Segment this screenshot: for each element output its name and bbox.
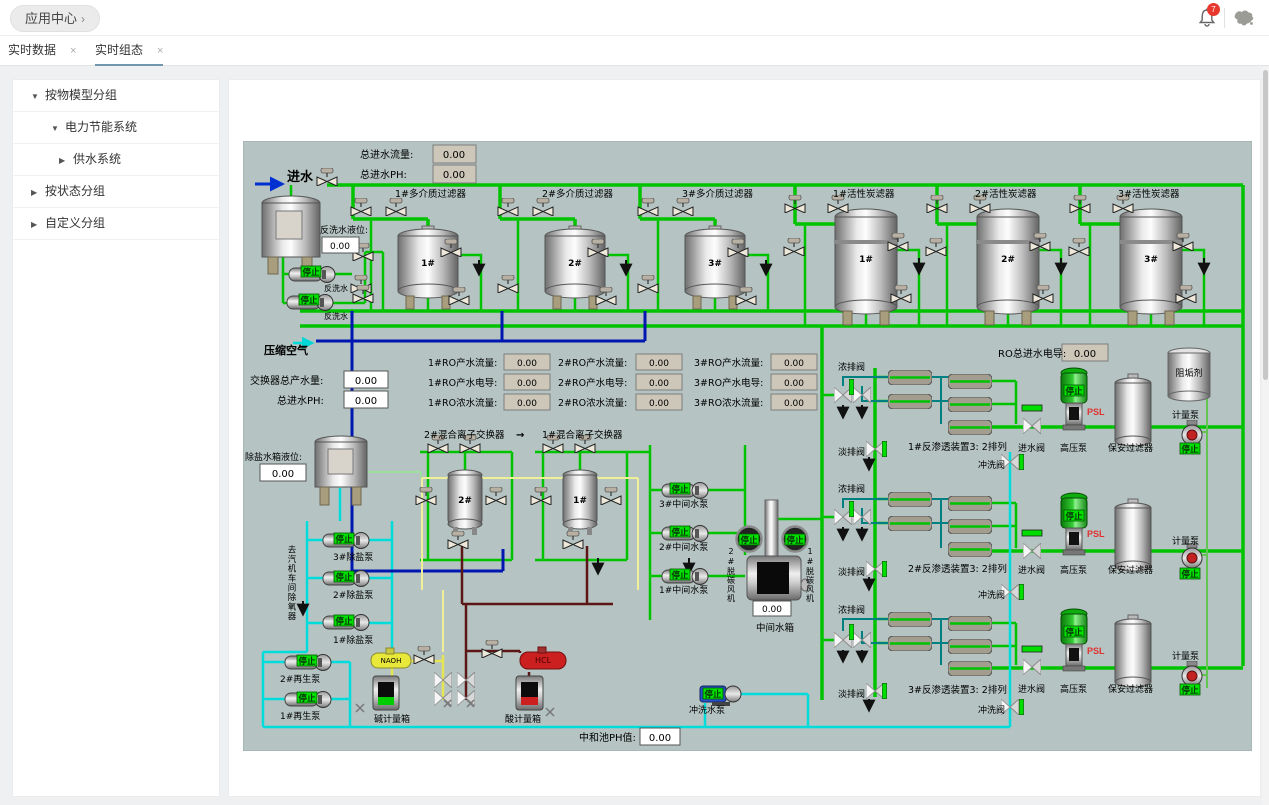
- stop-button: 停止: [299, 294, 319, 306]
- svg-text:停止: 停止: [1065, 386, 1083, 397]
- sidebar-item-label: 按物模型分组: [45, 88, 117, 102]
- stop-button: 停止: [670, 526, 690, 538]
- chevron-down-icon: ▼: [51, 113, 65, 144]
- svg-text:3#RO产水流量:: 3#RO产水流量:: [694, 357, 763, 369]
- svg-text:停止: 停止: [1065, 627, 1083, 638]
- svg-text:停止: 停止: [1181, 685, 1199, 696]
- svg-text:3#中间水泵: 3#中间水泵: [659, 498, 708, 510]
- svg-text:停止: 停止: [335, 572, 353, 583]
- main-panel: 1# 2# 3#: [228, 79, 1261, 797]
- svg-text:冲洗水泵: 冲洗水泵: [689, 704, 725, 716]
- scrollbar[interactable]: [1262, 67, 1269, 805]
- svg-text:停止: 停止: [786, 535, 804, 546]
- svg-text:3#RO浓水流量:: 3#RO浓水流量:: [694, 397, 763, 409]
- svg-text:PSL: PSL: [1087, 529, 1105, 539]
- carbon-filter-2: 2#: [977, 209, 1039, 325]
- stop-button: 停止: [670, 569, 690, 581]
- security-filter-2: [1115, 499, 1151, 571]
- svg-text:停止: 停止: [1065, 511, 1083, 522]
- svg-text:→: →: [516, 430, 524, 441]
- svg-text:反洗水: 反洗水: [324, 311, 348, 321]
- stop-button: 停止: [703, 688, 723, 700]
- ro3-conc-value: 0.00: [784, 399, 804, 409]
- svg-text:2#反渗透装置3: 2排列: 2#反渗透装置3: 2排列: [908, 563, 1007, 575]
- app-center-button[interactable]: 应用中心›: [10, 5, 100, 32]
- svg-text:3#: 3#: [1144, 255, 1158, 265]
- svg-text:除盐水箱液位:: 除盐水箱液位:: [245, 451, 302, 463]
- china-map-icon[interactable]: [1232, 8, 1256, 28]
- svg-text:停止: 停止: [671, 527, 689, 538]
- svg-text:计量泵: 计量泵: [1172, 409, 1199, 421]
- svg-text:2#除盐泵: 2#除盐泵: [333, 589, 373, 601]
- mid-tank-level-value: 0.00: [762, 605, 782, 615]
- svg-text:停止: 停止: [740, 535, 758, 546]
- svg-text:停止: 停止: [335, 616, 353, 627]
- exch-total-value: 0.00: [355, 376, 377, 387]
- svg-text:进水阀: 进水阀: [1018, 442, 1045, 454]
- sidebar-item-custom-group[interactable]: ▶自定义分组: [13, 208, 219, 240]
- stop-button: 停止: [1064, 510, 1084, 522]
- svg-text:RO总进水电导:: RO总进水电导:: [998, 347, 1066, 360]
- stop-button: 停止: [334, 615, 354, 627]
- ro1-flow-value: 0.00: [517, 359, 537, 369]
- svg-text:1#混合离子交换器: 1#混合离子交换器: [542, 429, 623, 441]
- backwash-level-value: 0.00: [330, 242, 350, 252]
- acid-metering-tank: [516, 676, 543, 710]
- svg-text:2#RO产水电导:: 2#RO产水电导:: [558, 377, 627, 389]
- svg-text:1#: 1#: [421, 259, 435, 269]
- svg-text:中间水箱: 中间水箱: [756, 622, 794, 634]
- svg-text:1#RO产水流量:: 1#RO产水流量:: [428, 357, 497, 369]
- scrollbar-thumb[interactable]: [1263, 70, 1268, 380]
- svg-text:1#RO产水电导:: 1#RO产水电导:: [428, 377, 497, 389]
- svg-text:1#除盐泵: 1#除盐泵: [333, 634, 373, 646]
- chevron-right-icon: ▶: [31, 177, 45, 208]
- svg-text:中和池PH值:: 中和池PH值:: [579, 731, 636, 744]
- svg-text:反洗水: 反洗水: [324, 283, 348, 293]
- tab-label: 实时数据: [8, 43, 56, 57]
- svg-text:3#反渗透装置3: 2排列: 3#反渗透装置3: 2排列: [908, 684, 1007, 696]
- svg-text:进水: 进水: [287, 169, 314, 185]
- svg-text:2#再生泵: 2#再生泵: [280, 673, 320, 685]
- svg-text:计量泵: 计量泵: [1172, 650, 1199, 662]
- svg-text:保安过滤器: 保安过滤器: [1108, 564, 1153, 576]
- sidebar-item-label: 自定义分组: [45, 216, 105, 230]
- svg-text:3#除盐泵: 3#除盐泵: [333, 551, 373, 563]
- svg-text:2#RO浓水流量:: 2#RO浓水流量:: [558, 397, 627, 409]
- svg-text:酸计量箱: 酸计量箱: [505, 713, 541, 725]
- svg-text:浓排阀: 浓排阀: [838, 483, 865, 495]
- alkali-metering-tank: [373, 676, 399, 710]
- sidebar-item-power-saving[interactable]: ▼电力节能系统: [13, 112, 219, 144]
- svg-text:淡排阀: 淡排阀: [838, 566, 865, 578]
- svg-text:2#中间水泵: 2#中间水泵: [659, 541, 708, 553]
- svg-text:停止: 停止: [1181, 444, 1199, 455]
- divider: [1224, 8, 1225, 28]
- scada-diagram: 1# 2# 3#: [243, 141, 1252, 751]
- tab-realtime-graphic[interactable]: 实时组态×: [95, 36, 163, 66]
- svg-text:3#活性炭滤器: 3#活性炭滤器: [1118, 188, 1180, 200]
- svg-text:1#再生泵: 1#再生泵: [280, 710, 320, 722]
- ro-total-cond-value: 0.00: [1074, 349, 1096, 360]
- svg-text:压缩空气: 压缩空气: [264, 343, 308, 357]
- svg-text:进水阀: 进水阀: [1018, 564, 1045, 576]
- svg-text:计量泵: 计量泵: [1172, 535, 1199, 547]
- stop-button: 停止: [297, 655, 317, 667]
- stop-button: 停止: [297, 692, 317, 704]
- svg-text:1#反渗透装置3: 2排列: 1#反渗透装置3: 2排列: [908, 441, 1007, 453]
- security-filter-1: [1115, 374, 1151, 446]
- desalt-level-value: 0.00: [272, 469, 294, 480]
- svg-text:PSL: PSL: [1087, 646, 1105, 656]
- svg-text:高压泵: 高压泵: [1060, 564, 1087, 576]
- ro3-flow-value: 0.00: [784, 359, 804, 369]
- tab-bar: 实时数据× 实时组态×: [0, 36, 1269, 66]
- stop-button: 停止: [739, 534, 759, 546]
- svg-text:淡排阀: 淡排阀: [838, 446, 865, 458]
- chevron-right-icon: ›: [81, 12, 85, 26]
- stop-button: 停止: [670, 483, 690, 495]
- svg-text:PSL: PSL: [1087, 407, 1105, 417]
- svg-text:2#RO产水流量:: 2#RO产水流量:: [558, 357, 627, 369]
- svg-text:浓排阀: 浓排阀: [838, 361, 865, 373]
- svg-text:停止: 停止: [298, 656, 316, 667]
- svg-text:停止: 停止: [671, 484, 689, 495]
- sidebar-item-water-supply[interactable]: ▶供水系统: [13, 144, 219, 176]
- svg-text:总进水流量:: 总进水流量:: [360, 148, 413, 161]
- sidebar-item-model-group[interactable]: ▼按物模型分组: [13, 80, 219, 112]
- chevron-right-icon: ▶: [59, 145, 73, 176]
- svg-text:交换器总产水量:: 交换器总产水量:: [250, 374, 323, 387]
- chevron-down-icon: ▼: [31, 81, 45, 112]
- security-filter-3: [1115, 615, 1151, 687]
- svg-text:停止: 停止: [298, 693, 316, 704]
- svg-text:淡排阀: 淡排阀: [838, 688, 865, 700]
- svg-text:2#活性炭滤器: 2#活性炭滤器: [975, 188, 1037, 200]
- svg-text:2#: 2#: [458, 496, 472, 506]
- top-bar: 应用中心› 7: [0, 0, 1269, 36]
- ro2-cond-value: 0.00: [649, 379, 669, 389]
- svg-text:停止: 停止: [704, 689, 722, 700]
- svg-text:3#多介质过滤器: 3#多介质过滤器: [682, 188, 754, 200]
- ro1-cond-value: 0.00: [517, 379, 537, 389]
- svg-text:1#中间水泵: 1#中间水泵: [659, 584, 708, 596]
- ro2-flow-value: 0.00: [649, 359, 669, 369]
- svg-text:停止: 停止: [671, 570, 689, 581]
- svg-text:冲洗阀: 冲洗阀: [978, 704, 1005, 716]
- stop-button: 停止: [334, 533, 354, 545]
- svg-text:2#混合离子交换器: 2#混合离子交换器: [424, 429, 505, 441]
- ion-exchanger-1: 1#: [563, 470, 597, 535]
- svg-text:阻垢剂: 阻垢剂: [1175, 367, 1202, 379]
- svg-text:总进水PH:: 总进水PH:: [277, 394, 324, 407]
- ion-exchanger-2: 2#: [448, 470, 482, 535]
- svg-text:1#脱碳风机: 1#脱碳风机: [806, 547, 815, 603]
- app-window: 应用中心› 7 实时数据× 实时组态× ▼按物模型分组 ▼电力节能系统 ▶供水系…: [0, 0, 1269, 805]
- svg-text:碱计量箱: 碱计量箱: [374, 713, 410, 725]
- neutral-ph-value: 0.00: [649, 733, 671, 744]
- svg-text:1#: 1#: [859, 255, 873, 265]
- close-icon[interactable]: ×: [157, 45, 163, 57]
- svg-text:保安过滤器: 保安过滤器: [1108, 683, 1153, 695]
- stop-button: 停止: [1064, 385, 1084, 397]
- total-flow-value: 0.00: [443, 150, 465, 161]
- svg-text:2#: 2#: [568, 259, 582, 269]
- inlet-ph-value: 0.00: [355, 396, 377, 407]
- ro2-conc-value: 0.00: [649, 399, 669, 409]
- svg-text:冲洗阀: 冲洗阀: [978, 459, 1005, 471]
- stop-button: 停止: [334, 571, 354, 583]
- sidebar-item-label: 按状态分组: [45, 184, 105, 198]
- stop-button: 停止: [1064, 626, 1084, 638]
- svg-text:去汽机车间除氧器: 去汽机车间除氧器: [286, 544, 296, 621]
- stop-button: 停止: [1180, 684, 1200, 696]
- stop-button: 停止: [1180, 568, 1200, 580]
- svg-text:冲洗阀: 冲洗阀: [978, 589, 1005, 601]
- sidebar-item-label: 电力节能系统: [65, 120, 137, 134]
- svg-text:3#: 3#: [708, 259, 722, 269]
- total-ph-value: 0.00: [443, 170, 465, 181]
- svg-text:浓排阀: 浓排阀: [838, 604, 865, 616]
- app-center-label: 应用中心: [25, 11, 77, 26]
- sidebar-tree: ▼按物模型分组 ▼电力节能系统 ▶供水系统 ▶按状态分组 ▶自定义分组: [12, 79, 220, 797]
- svg-text:1#RO浓水流量:: 1#RO浓水流量:: [428, 397, 497, 409]
- svg-text:NAOH: NAOH: [381, 657, 402, 665]
- stop-button: 停止: [301, 266, 321, 278]
- stop-button: 停止: [1180, 443, 1200, 455]
- chevron-right-icon: ▶: [31, 209, 45, 240]
- svg-text:1#多介质过滤器: 1#多介质过滤器: [395, 188, 467, 200]
- svg-text:总进水PH:: 总进水PH:: [360, 168, 407, 181]
- svg-text:保安过滤器: 保安过滤器: [1108, 442, 1153, 454]
- stop-button: 停止: [785, 534, 805, 546]
- svg-text:停止: 停止: [1181, 569, 1199, 580]
- svg-text:HCL: HCL: [535, 656, 552, 665]
- tab-realtime-data[interactable]: 实时数据×: [8, 36, 76, 66]
- sidebar-item-label: 供水系统: [73, 152, 121, 166]
- ro1-conc-value: 0.00: [517, 399, 537, 409]
- svg-text:反洗水液位:: 反洗水液位:: [320, 224, 368, 236]
- ro3-cond-value: 0.00: [784, 379, 804, 389]
- svg-text:1#活性炭滤器: 1#活性炭滤器: [833, 188, 895, 200]
- svg-text:2#脱碳风机: 2#脱碳风机: [727, 547, 736, 603]
- svg-text:高压泵: 高压泵: [1060, 683, 1087, 695]
- svg-text:3#RO产水电导:: 3#RO产水电导:: [694, 377, 763, 389]
- svg-text:1#: 1#: [573, 496, 587, 506]
- svg-text:进水阀: 进水阀: [1018, 683, 1045, 695]
- close-icon[interactable]: ×: [70, 45, 76, 57]
- carbon-filter-3: 3#: [1120, 209, 1182, 325]
- svg-text:停止: 停止: [300, 295, 318, 306]
- svg-text:停止: 停止: [335, 534, 353, 545]
- notification-badge: 7: [1207, 3, 1220, 16]
- carbon-filter-1: 1#: [835, 209, 897, 325]
- sidebar-item-status-group[interactable]: ▶按状态分组: [13, 176, 219, 208]
- tab-label: 实时组态: [95, 43, 143, 57]
- svg-text:2#: 2#: [1001, 255, 1015, 265]
- svg-text:高压泵: 高压泵: [1060, 442, 1087, 454]
- svg-text:停止: 停止: [302, 267, 320, 278]
- svg-text:2#多介质过滤器: 2#多介质过滤器: [542, 188, 614, 200]
